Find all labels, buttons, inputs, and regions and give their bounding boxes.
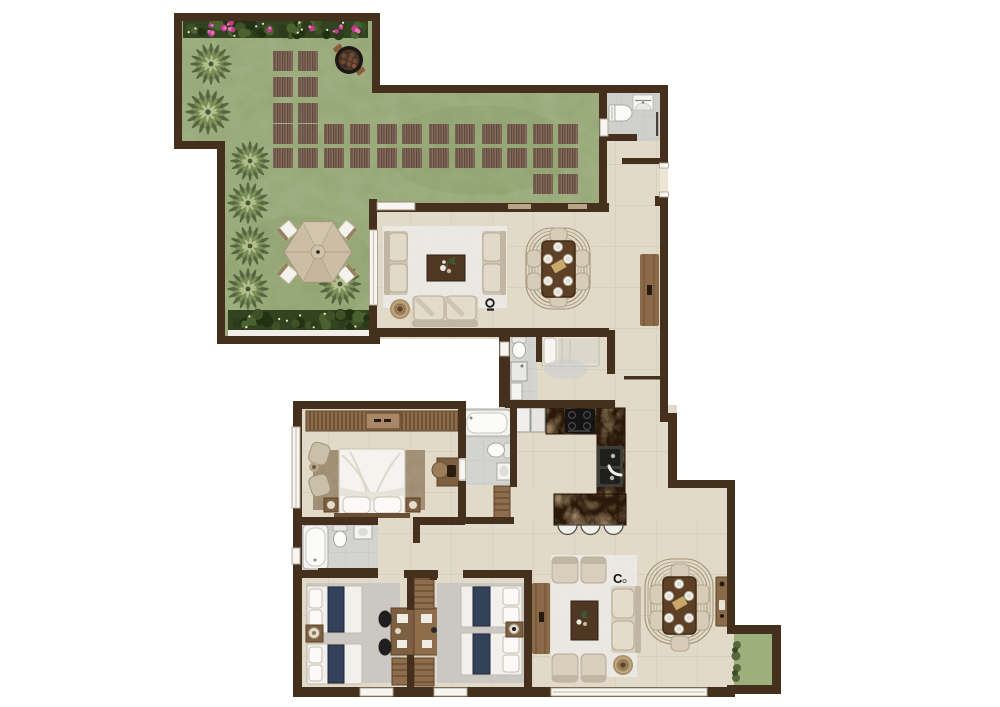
- svg-text:C: C: [613, 571, 623, 586]
